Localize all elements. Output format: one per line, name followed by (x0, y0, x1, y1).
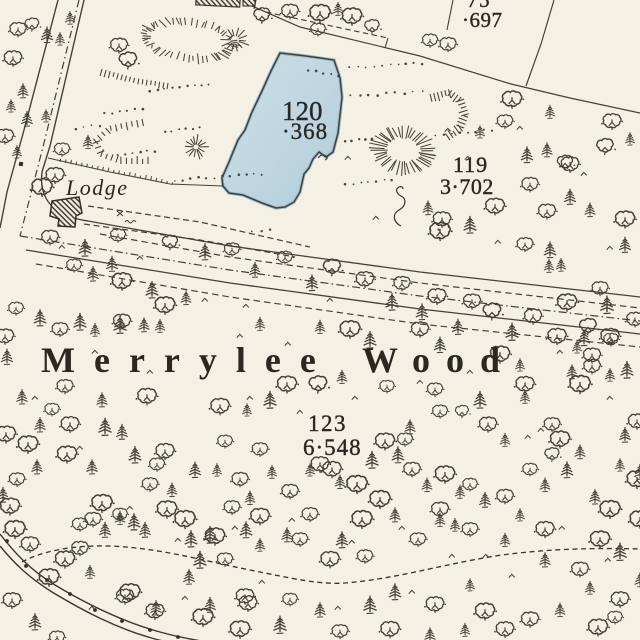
svg-text:·368: ·368 (282, 119, 328, 144)
svg-text:123: 123 (308, 411, 347, 436)
svg-text:6·548: 6·548 (303, 435, 362, 460)
svg-text:Merrylee: Merrylee (41, 340, 335, 380)
svg-text:Lodge: Lodge (65, 175, 129, 200)
svg-text:·697: ·697 (462, 8, 503, 32)
svg-text:Wood: Wood (362, 340, 516, 380)
svg-text:3·702: 3·702 (440, 174, 494, 199)
